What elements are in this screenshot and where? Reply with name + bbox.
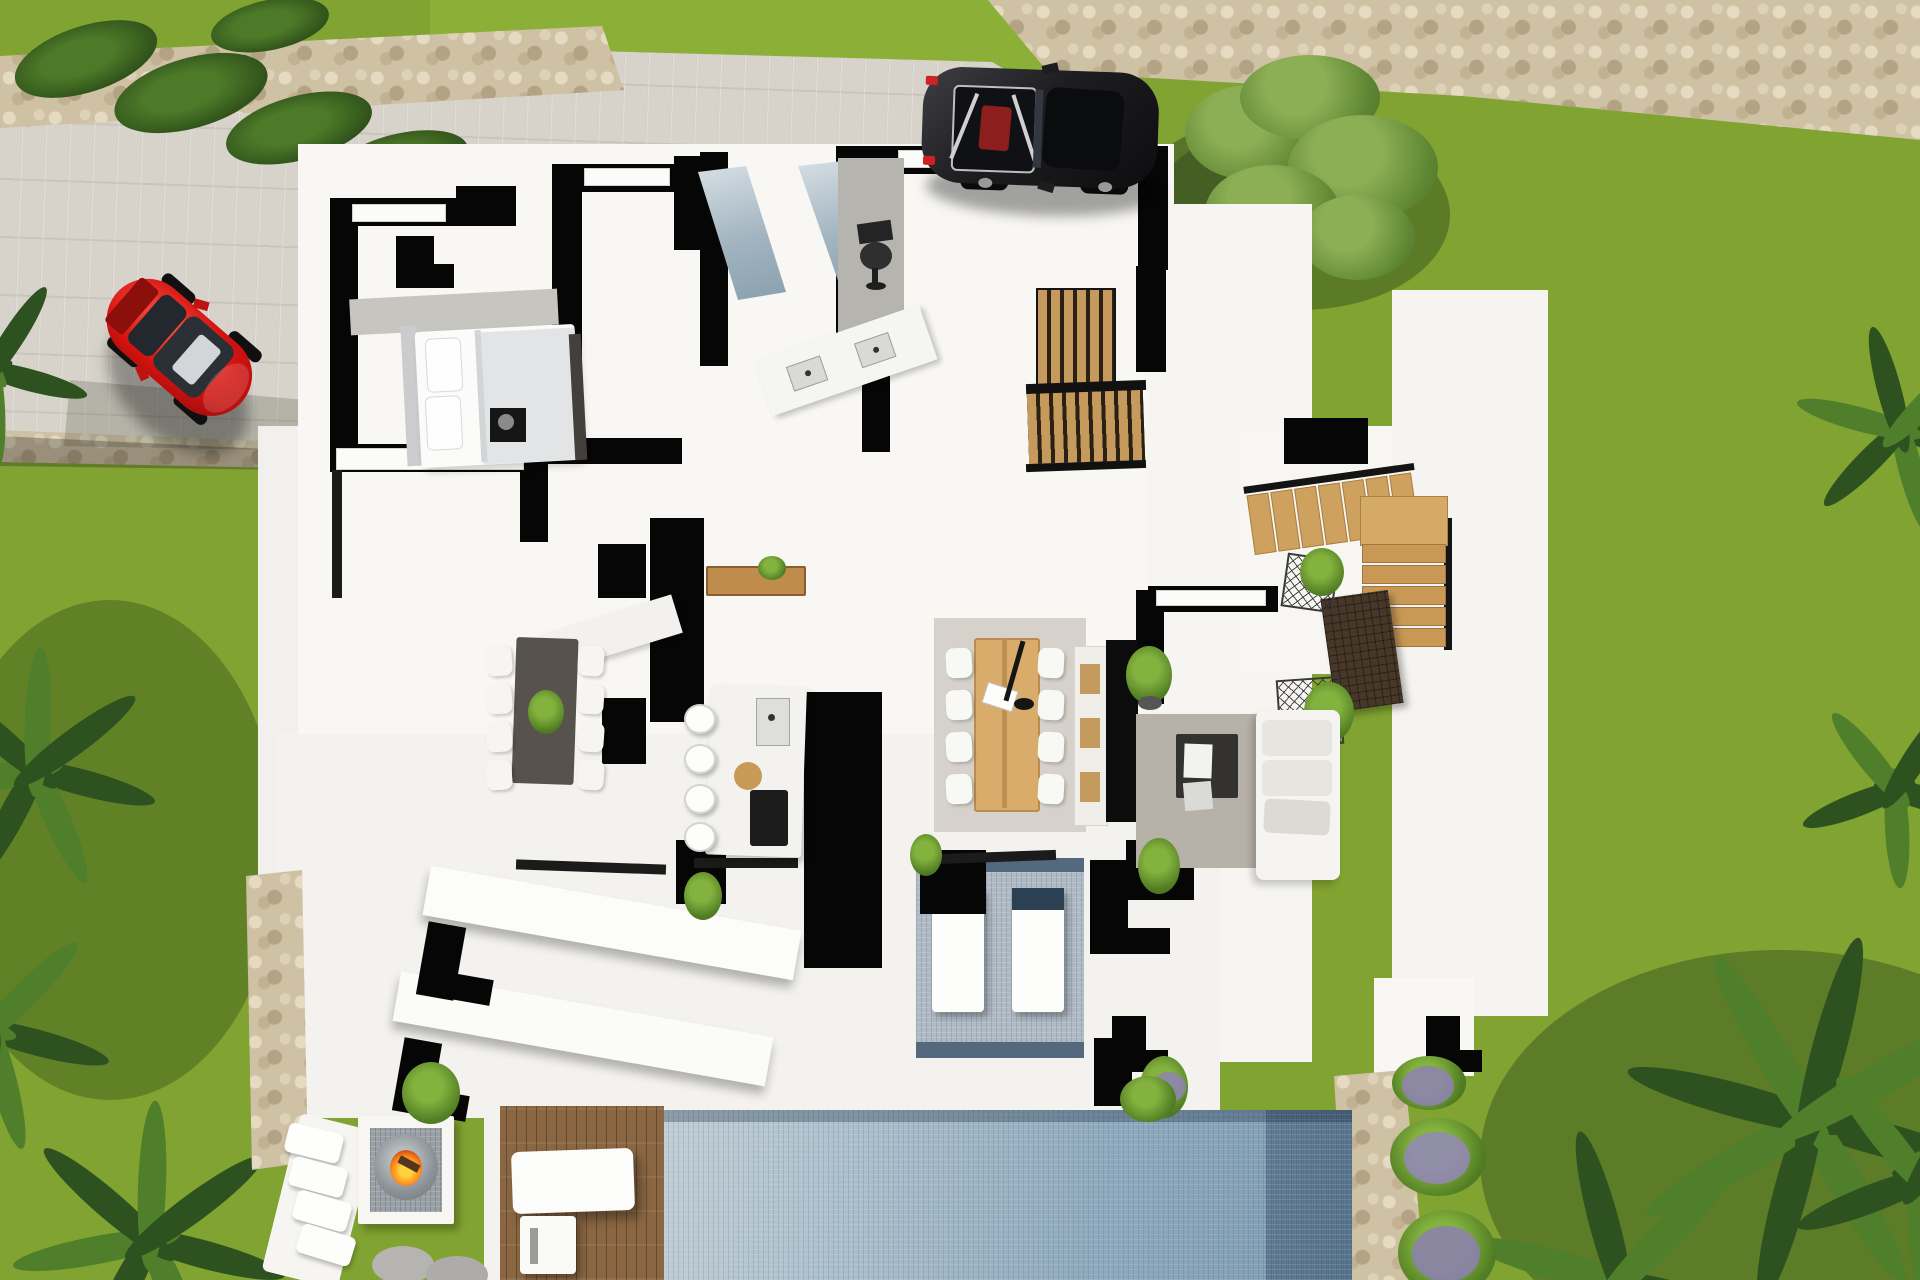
outdoor-chair-r2	[577, 683, 605, 715]
hall-chair-seat	[860, 242, 892, 270]
deck-table-slit	[530, 1228, 538, 1264]
living-plant-pot	[1138, 696, 1162, 710]
outdoor-chair-l1	[485, 645, 513, 677]
bed-duvet	[477, 328, 582, 465]
dining-chair-r4	[1037, 773, 1065, 804]
glass-slider-left	[332, 470, 342, 598]
wall-stairwell-top	[1284, 418, 1368, 464]
pool-water	[658, 1110, 1352, 1280]
island-cooktop	[750, 790, 788, 846]
wall-top-stub	[456, 186, 516, 226]
dining-chair-r1	[1037, 647, 1065, 678]
pool-dark-border	[1266, 1110, 1352, 1280]
island-sink	[756, 698, 790, 746]
stair-ltread-2	[1362, 565, 1446, 584]
wall-central-mass	[804, 692, 882, 968]
sideboard-console	[706, 566, 806, 596]
shrub-pool-right	[1120, 1076, 1176, 1122]
sofa-cushion-1	[1262, 720, 1332, 756]
wall-kitchen-stub-1	[598, 544, 646, 598]
island-sink-faucet	[768, 714, 775, 721]
media-cabinet-wood-2	[1080, 718, 1100, 748]
terrace-plant-1	[402, 1062, 460, 1124]
stair-ltread-1	[1362, 544, 1446, 563]
wood-slat-partition	[1036, 288, 1116, 394]
car-black	[920, 60, 1175, 209]
coffee-table-mag-2	[1183, 781, 1213, 811]
outdoor-chair-l4	[485, 759, 513, 791]
lavender-bush-3-purple	[1412, 1226, 1480, 1280]
patio-lounger-2-headrest	[1012, 888, 1064, 910]
dining-table-runner	[1002, 638, 1007, 808]
outdoor-chair-r4	[577, 759, 605, 791]
outdoor-table-plant	[528, 690, 564, 734]
terrace-plant-4	[1138, 838, 1180, 894]
upper-stair-slats	[1027, 390, 1145, 464]
lavender-bush-2-purple	[1404, 1132, 1470, 1184]
sofa-throw	[1263, 798, 1331, 835]
bed-pillow-1	[425, 337, 464, 393]
wall-rightwing-v	[1136, 266, 1166, 372]
sofa-cushion-2	[1262, 760, 1332, 796]
outdoor-chair-r3	[577, 721, 605, 753]
terrace-plant-3	[910, 834, 942, 876]
dining-chair-l4	[945, 773, 973, 804]
olive-tree-blob-5	[1300, 195, 1415, 280]
stair-landing	[1360, 496, 1448, 546]
outdoor-chair-r1	[577, 645, 605, 677]
car-black-cabin-glass	[1041, 87, 1124, 172]
island-wood-tray	[734, 762, 762, 790]
wire-chair-1-plant	[1300, 548, 1344, 596]
wall-L-housecorner-b	[396, 264, 454, 288]
hall-chair-base	[866, 282, 886, 290]
deck-side-table	[520, 1216, 576, 1274]
car-black-engine	[978, 105, 1012, 151]
bar-stool-3	[684, 784, 716, 814]
console-plant	[758, 556, 786, 580]
villa-aerial-render	[0, 0, 1920, 1280]
bar-stool-4	[684, 822, 716, 852]
wall-kitchen-stub-2	[602, 698, 646, 764]
glass-slider-2	[694, 858, 798, 868]
lavender-bush-1-purple	[1402, 1066, 1454, 1106]
terrace-plant-2	[684, 872, 722, 920]
dining-chair-l2	[945, 689, 973, 720]
bed-pillow-2	[425, 395, 464, 451]
firepit-gray-cushion-1	[372, 1246, 434, 1280]
deck-daybed	[511, 1148, 635, 1214]
deck-edge-strip	[484, 1102, 500, 1280]
pool-edge-shadow	[658, 1110, 1352, 1122]
dining-chair-r2	[1037, 689, 1065, 720]
patio-border-bottom	[916, 1042, 1084, 1058]
dining-chair-l3	[945, 731, 973, 762]
wall-cap-2	[584, 168, 670, 186]
dining-chair-r3	[1037, 731, 1065, 762]
wall-L-patio-1b	[1090, 928, 1170, 954]
outdoor-chair-l2	[485, 683, 513, 715]
dining-lamp-head	[1014, 698, 1034, 710]
outdoor-chair-l3	[485, 721, 513, 753]
media-cabinet-wood-3	[1080, 772, 1100, 802]
bar-stool-1	[684, 704, 716, 734]
bar-stool-2	[684, 744, 716, 774]
car-black-taillight-1	[926, 76, 938, 85]
nightstand-lamp	[498, 414, 514, 430]
wall-cap-1	[352, 204, 446, 222]
media-cabinet-wood-1	[1080, 664, 1100, 694]
wall-cap-5	[1156, 590, 1266, 606]
dining-table	[974, 638, 1040, 812]
car-black-taillight-2	[923, 156, 935, 165]
coffee-table-mag-1	[1183, 744, 1212, 779]
dining-chair-l1	[945, 647, 973, 678]
